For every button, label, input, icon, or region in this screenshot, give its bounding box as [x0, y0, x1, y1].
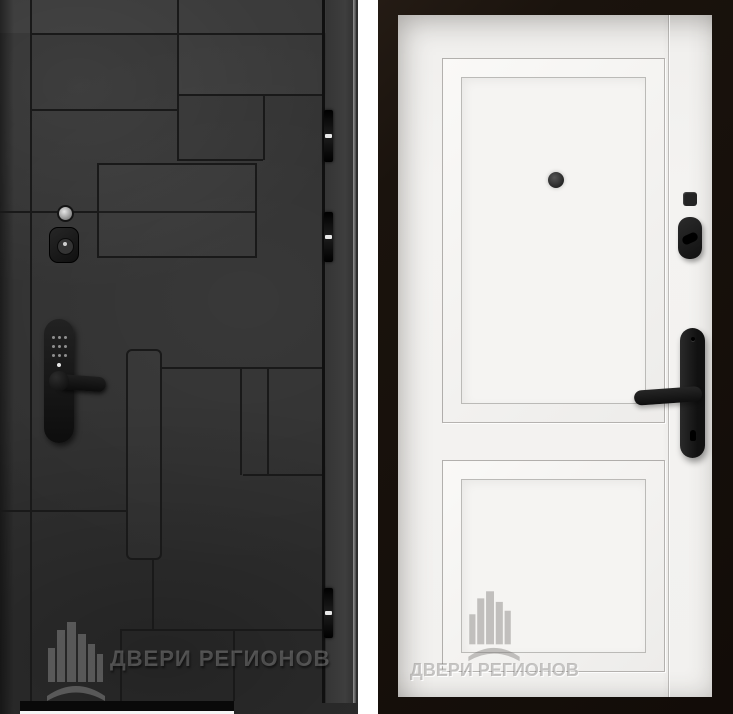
hinge-pin: [325, 235, 332, 239]
groove-line: [120, 630, 122, 701]
door-edge-highlight: [353, 0, 356, 703]
recessed-strip: [126, 349, 162, 560]
brand-logo-buildings-icon: [46, 616, 106, 702]
hinge: [324, 110, 333, 162]
keypad-dot: [52, 345, 55, 348]
keypad-dot: [52, 354, 55, 357]
hinge-pin: [325, 611, 332, 615]
lock-glint: [63, 242, 67, 246]
hinge: [324, 588, 333, 638]
thumbturn-knob: [681, 231, 699, 246]
groove-line: [267, 368, 269, 475]
keypad-dot: [52, 336, 55, 339]
groove-line: [177, 159, 263, 161]
raised-panel-top: [442, 58, 665, 423]
keyhole: [690, 430, 696, 441]
thumbturn: [678, 217, 702, 259]
keypad-dot: [64, 345, 67, 348]
white-door-leaf: ДВЕРИ РЕГИОНОВ: [398, 15, 712, 697]
backplate-screw: [691, 337, 695, 341]
keypad-dot: [58, 336, 61, 339]
right-door-photo: ДВЕРИ РЕГИОНОВ: [378, 0, 733, 714]
keypad-dot: [64, 354, 67, 357]
groove-line: [233, 630, 235, 701]
hinge: [324, 212, 333, 262]
keypad-dot: [58, 345, 61, 348]
stile-seam-line: [668, 15, 669, 697]
cylinder-lock: [49, 227, 79, 263]
groove-line: [152, 560, 154, 630]
peephole: [548, 172, 564, 188]
brand-watermark-text: ДВЕРИ РЕГИОНОВ: [110, 646, 340, 672]
panel-inner-face: [461, 77, 646, 404]
groove-line: [263, 95, 265, 160]
groove-line: [243, 474, 324, 476]
peephole: [57, 205, 74, 222]
raised-panel-bottom: [442, 460, 665, 672]
keypad-dot: [64, 336, 67, 339]
smart-lock-hub: [49, 371, 69, 391]
lock-core: [57, 238, 74, 255]
groove-line: [30, 0, 32, 701]
groove-line: [30, 109, 177, 111]
groove-line: [240, 368, 242, 475]
door-left-shadow: [0, 0, 14, 714]
groove-line: [162, 367, 324, 369]
hinge-pin: [325, 134, 332, 138]
left-door-photo: ДВЕРИ РЕГИОНОВ: [0, 0, 358, 714]
concrete-slab: [0, 0, 358, 33]
keypad-indicator-dot: [57, 363, 61, 367]
groove-line: [0, 510, 126, 512]
panel-inner-face: [461, 479, 646, 653]
concrete-slab: [177, 33, 324, 95]
deadbolt-indicator: [683, 192, 697, 206]
groove-line: [177, 94, 324, 96]
keypad-dot: [58, 354, 61, 357]
groove-line: [120, 629, 324, 631]
recessed-rectangle: [97, 163, 257, 258]
groove-line: [177, 0, 179, 160]
